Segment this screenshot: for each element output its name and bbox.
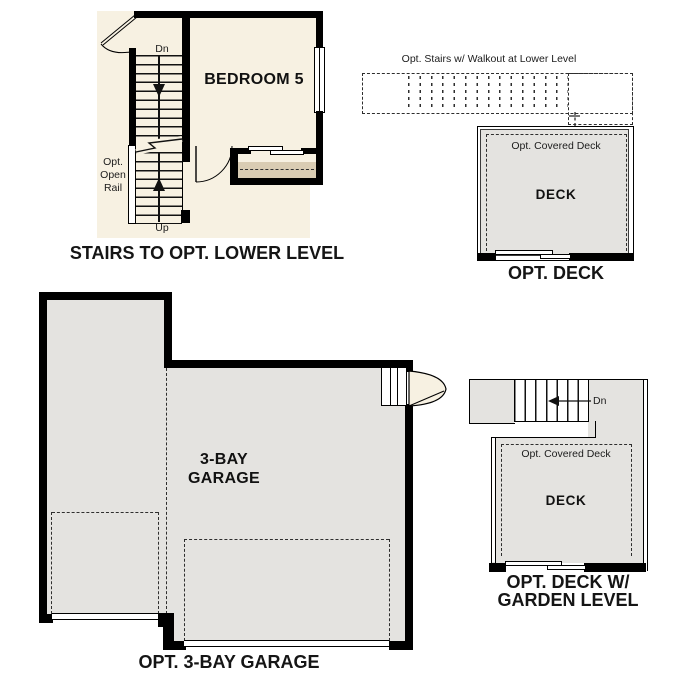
edge-line: [469, 423, 515, 424]
covered-deck-dashed-outline: [501, 444, 632, 445]
edge-line: [469, 379, 648, 380]
edge-line: [588, 380, 589, 421]
garden-dn-label: Dn: [593, 395, 623, 407]
floorplan-options-sheet: Dn Up Opt. Open Rail BEDROOM 5 STAIRS TO…: [0, 0, 687, 687]
deck-upper-strip: [588, 380, 643, 437]
edge-line: [514, 421, 589, 422]
deck-border: [647, 379, 648, 571]
stair-landing: [470, 380, 514, 423]
garden-deck-caption: OPT. DECK W/ GARDEN LEVEL: [468, 573, 668, 609]
wall: [489, 563, 506, 572]
edge-line: [469, 379, 470, 424]
garden-deck-plan: Opt. Covered Deck DECK Dn OPT. DECK W/ G…: [0, 0, 687, 687]
deck-border: [495, 437, 496, 563]
edge-line: [491, 437, 596, 438]
edge-line: [595, 421, 596, 437]
deck-label: DECK: [501, 493, 631, 508]
edge-line: [514, 380, 515, 422]
garden-stair-treads: [514, 380, 588, 421]
covered-deck-dashed-outline: [631, 444, 632, 556]
wall: [584, 563, 646, 572]
sliding-door: [547, 565, 586, 570]
covered-deck-label: Opt. Covered Deck: [501, 448, 631, 460]
